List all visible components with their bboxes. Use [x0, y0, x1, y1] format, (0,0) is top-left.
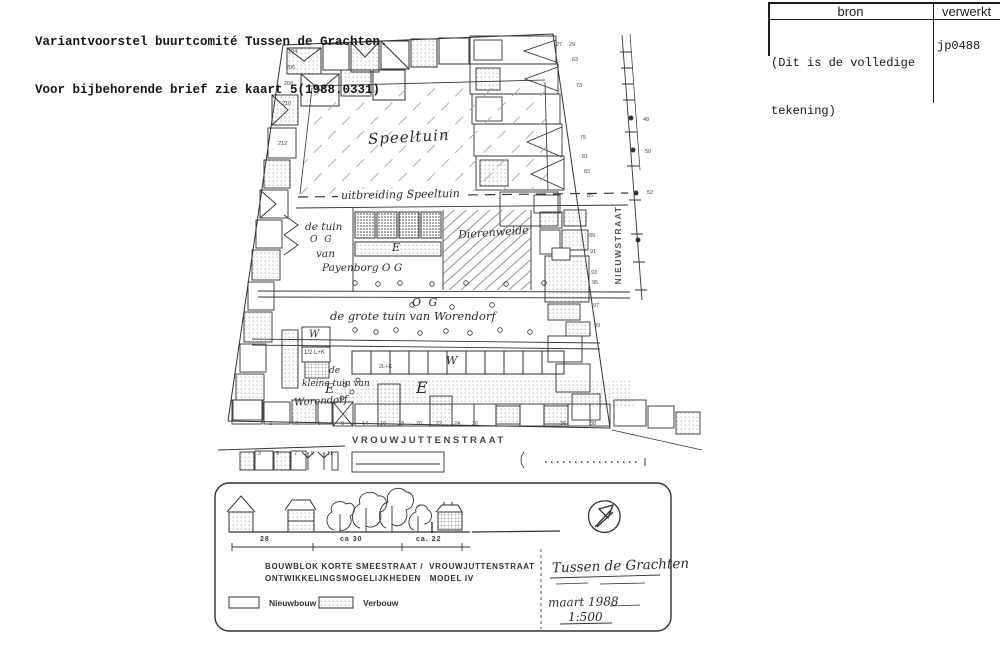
- page-title-line1: Variantvoorstel buurtcomité Tussen de Gr…: [35, 34, 388, 50]
- legend-title-line2: ONTWIKKELINGSMOGELIJKHEDEN MODEL IV: [265, 574, 474, 583]
- big-yard-stipple: [335, 378, 634, 406]
- buildings-right-lower: [540, 210, 600, 420]
- label-nieuwstraat: NIEUWSTRAAT: [613, 190, 623, 300]
- label-worendorf: Worendorf: [294, 395, 348, 409]
- page-title: Variantvoorstel buurtcomité Tussen de Gr…: [35, 2, 388, 130]
- label-e-kleine: E: [325, 382, 335, 397]
- legend-title-line1: BOUWBLOK KORTE SMEESTRAAT / VROUWJUTTENS…: [265, 562, 535, 571]
- dimension-label-3: ca. 22: [416, 536, 441, 543]
- tree-icons: [327, 488, 432, 532]
- label-w-garage: W: [446, 354, 457, 367]
- label-speeltuin: Speeltuin: [368, 126, 450, 148]
- label-og-grote-tuin: O G: [412, 296, 439, 309]
- label-2lk: 2L+K: [379, 364, 392, 370]
- garden-trees: [340, 281, 546, 400]
- nieuwstraat-facade-strip: [620, 34, 647, 300]
- label-e-strip: E: [392, 241, 400, 254]
- label-grote-tuin: de grote tuin van Worendorf: [330, 309, 496, 323]
- drawing-date: maart 1988: [548, 594, 619, 609]
- label-payenborg: Payenborg O G: [322, 262, 402, 274]
- table-header-verwerkt: verwerkt: [933, 4, 1000, 19]
- label-de: de: [329, 366, 340, 376]
- dimension-line: [232, 543, 470, 551]
- label-dierenweide: Dierenweide: [458, 224, 529, 242]
- label-e-groot: E: [416, 378, 428, 397]
- garage-row: [252, 339, 600, 374]
- drawing-scale: 1:500: [568, 610, 603, 624]
- buildings-left-band: [233, 95, 298, 420]
- label-van: van: [316, 248, 335, 260]
- table-verwerkt-value: jp0488: [937, 38, 980, 54]
- page-title-line2: Voor bijbehorende brief zie kaart 5(1988…: [35, 82, 388, 98]
- project-title: Tussen de Grachten: [552, 556, 690, 577]
- label-de-tuin: de tuin: [305, 221, 342, 233]
- table-bron-note: (Dit is de volledige tekening): [771, 23, 915, 151]
- archive-logo-arrow-icon: [589, 501, 621, 532]
- scanned-archive-drawing: Variantvoorstel buurtcomité Tussen de Gr…: [0, 0, 1000, 649]
- label-uitbreiding-speeltuin: uitbreiding Speeltuin: [338, 187, 463, 202]
- buildings-right-column: [470, 36, 564, 226]
- table-header-border: [768, 19, 1000, 20]
- dimension-label-1: 28: [260, 536, 270, 543]
- label-kleine-tuin: kleine tuin van: [302, 379, 370, 389]
- legend-swatch-new-label: Nieuwbouw: [269, 598, 316, 608]
- table-header-bron: bron: [768, 4, 933, 19]
- label-half-lk: 1/2 L+K: [304, 350, 325, 356]
- label-vrouwjuttenstraat: VROUWJUTTENSTRAAT: [352, 435, 506, 446]
- legend-box: [215, 483, 671, 631]
- label-w-left: W: [309, 329, 319, 340]
- label-og-payenborg: O G: [310, 235, 333, 245]
- south-side-fragments: [218, 446, 645, 472]
- dimension-label-2: ca 30: [340, 536, 363, 543]
- legend-swatch-rebuild-label: Verbouw: [363, 598, 398, 608]
